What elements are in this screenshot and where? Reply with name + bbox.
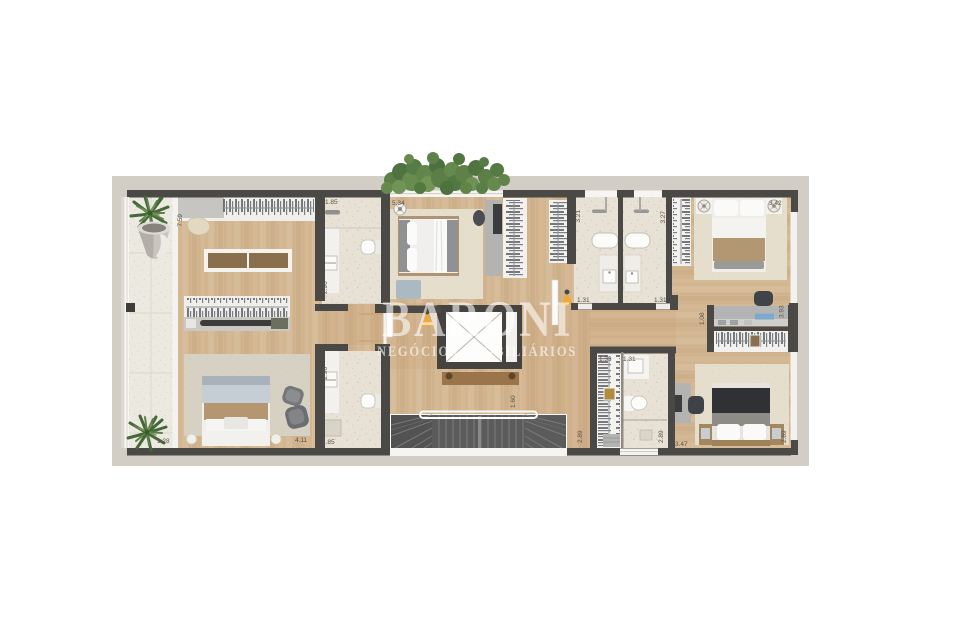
svg-text:1.85: 1.85: [325, 199, 338, 206]
svg-text:3.21: 3.21: [575, 210, 582, 223]
svg-text:7.59: 7.59: [177, 214, 184, 227]
svg-text:5.34: 5.34: [392, 200, 405, 207]
svg-text:BARONI: BARONI: [382, 292, 573, 348]
svg-text:1.08: 1.08: [699, 312, 706, 325]
svg-text:1.33: 1.33: [599, 356, 612, 363]
svg-text:1.31: 1.31: [577, 297, 590, 304]
svg-text:1.31: 1.31: [654, 297, 667, 304]
svg-text:1.60: 1.60: [510, 395, 517, 408]
svg-text:4.11: 4.11: [295, 437, 308, 444]
svg-text:1.28: 1.28: [157, 438, 170, 445]
svg-text:1.85: 1.85: [322, 439, 335, 446]
svg-text:1.31: 1.31: [623, 356, 636, 363]
svg-text:2.89: 2.89: [781, 430, 788, 443]
svg-text:2.89: 2.89: [577, 430, 584, 443]
svg-text:2.96: 2.96: [322, 367, 329, 380]
svg-text:3.93: 3.93: [779, 305, 786, 318]
svg-text:3.47: 3.47: [675, 441, 688, 448]
svg-text:2.89: 2.89: [658, 430, 665, 443]
svg-text:NEGÓCIOS IMOBILIÁRIOS: NEGÓCIOS IMOBILIÁRIOS: [377, 343, 577, 360]
svg-text:3.27: 3.27: [660, 211, 667, 224]
svg-text:3.42: 3.42: [769, 200, 782, 207]
svg-text:2.96: 2.96: [322, 281, 329, 294]
